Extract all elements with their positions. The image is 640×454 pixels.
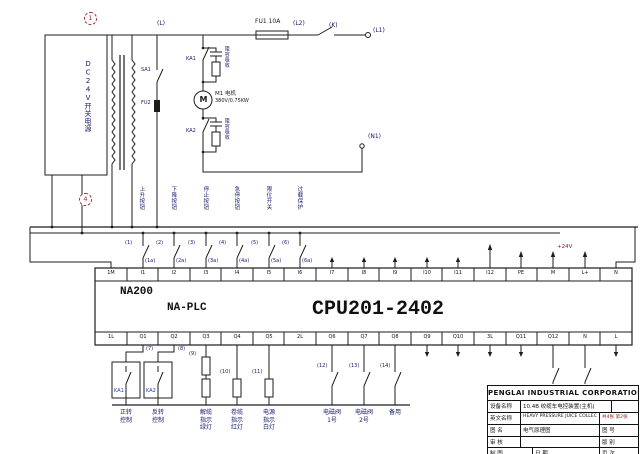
wire-label: (1) bbox=[125, 241, 132, 247]
input-device-label: 上升按钮 bbox=[138, 186, 144, 210]
terminal-label: I3 bbox=[191, 271, 221, 276]
device-name-label: 设备名称 bbox=[488, 401, 520, 412]
fuse2-label: FU2 bbox=[141, 101, 151, 107]
wire-label: (6a) bbox=[302, 259, 312, 265]
control-branch bbox=[154, 35, 163, 227]
empty-cell bbox=[611, 401, 638, 412]
motor-spec-label: 380V/0.75KW bbox=[215, 99, 249, 105]
terminal-label: L+ bbox=[570, 271, 600, 276]
relay-ka2-contact-label: KA2 bbox=[186, 129, 196, 135]
terminal-label: 1M bbox=[96, 271, 126, 276]
terminal-label: I7 bbox=[317, 271, 347, 276]
wire-label: (10) bbox=[220, 370, 230, 376]
spare-output-stubs bbox=[425, 345, 618, 384]
motor-m-letter: M bbox=[200, 95, 208, 104]
terminal-label: 1L bbox=[96, 335, 126, 340]
page-label: 页 次 bbox=[599, 448, 638, 454]
output-device-label: 备用 bbox=[377, 409, 413, 417]
terminal-label: Q12 bbox=[538, 335, 568, 340]
input-columns bbox=[142, 232, 306, 268]
english-name-value: HEAVY PRESSURE JUICE COLLEC bbox=[520, 413, 599, 424]
terminal-label: I2 bbox=[159, 271, 189, 276]
device-name-value: 10.4B 绞缆车电控装置(主机) bbox=[520, 401, 611, 412]
wire-label: (12) bbox=[317, 364, 327, 370]
terminal-label: PE bbox=[506, 271, 536, 276]
schematic-page: 1 4 DC24V开关电源 (L) FU1 10A (L2) (K) (L1) … bbox=[0, 0, 640, 454]
title-block: PENGLAI INDUSTRIAL CORPORATION LIMITED 设… bbox=[487, 385, 639, 454]
terminal-label: I12 bbox=[475, 271, 505, 276]
terminal-label: Q9 bbox=[412, 335, 442, 340]
top-bus bbox=[45, 27, 371, 39]
wire-label: (2a) bbox=[176, 259, 186, 265]
draft-label: 制 图 bbox=[488, 448, 532, 454]
terminal-label: I4 bbox=[222, 271, 252, 276]
terminal-label: I9 bbox=[380, 271, 410, 276]
wire-label: (13) bbox=[349, 364, 359, 370]
terminal-label: I10 bbox=[412, 271, 442, 276]
fuse1-label: FU1 10A bbox=[255, 19, 280, 26]
plc-brand: NA200 bbox=[120, 287, 153, 298]
terminal-label: I5 bbox=[254, 271, 284, 276]
terminal-L1 bbox=[366, 33, 371, 38]
wire-label: (5a) bbox=[271, 259, 281, 265]
rc-snubber-label-2: 阻容吸收 bbox=[223, 118, 229, 140]
wire-label: (7) bbox=[146, 347, 153, 353]
terminal-label: Q8 bbox=[380, 335, 410, 340]
power-supply-label: DC24V开关电源 bbox=[84, 60, 92, 133]
terminal-label: I6 bbox=[285, 271, 315, 276]
terminal-label: M bbox=[538, 271, 568, 276]
output-device-label: 正转 控制 bbox=[108, 409, 144, 424]
terminal-label: Q5 bbox=[254, 335, 284, 340]
terminal-label: I8 bbox=[349, 271, 379, 276]
drawing-name-label: 图 名 bbox=[488, 425, 520, 436]
wire-label: (14) bbox=[380, 364, 390, 370]
terminal-label: Q7 bbox=[349, 335, 379, 340]
wire-label: (6) bbox=[282, 241, 289, 247]
motor-name-label: M1 电机 bbox=[215, 91, 236, 97]
wire-label: (4a) bbox=[239, 259, 249, 265]
terminal-label: I1 bbox=[128, 271, 158, 276]
wire-label-L1: (L1) bbox=[373, 28, 385, 35]
input-device-label: 下降按钮 bbox=[170, 186, 176, 210]
wire-label: (11) bbox=[252, 370, 262, 376]
plc-series: NA-PLC bbox=[167, 303, 207, 314]
check-value bbox=[520, 437, 599, 447]
date-label: 日 期 bbox=[532, 448, 599, 454]
terminal-label: Q2 bbox=[159, 335, 189, 340]
wire-label-L2: (L2) bbox=[293, 21, 305, 28]
terminal-label: N bbox=[570, 335, 600, 340]
terminal-label: I11 bbox=[443, 271, 473, 276]
wire-label-K: (K) bbox=[329, 23, 338, 30]
input-device-label: 停止按钮 bbox=[202, 186, 208, 210]
terminal-label: 3L bbox=[475, 335, 505, 340]
wire-label: (3) bbox=[188, 241, 195, 247]
output-relay-label: KA1 bbox=[114, 389, 124, 395]
wire-label-N1: (N1) bbox=[368, 134, 381, 141]
callout-circle-4: 4 bbox=[79, 193, 92, 206]
plc-cpu-model: CPU201-2402 bbox=[312, 300, 444, 320]
plus24v-label: +24V bbox=[557, 244, 572, 250]
output-device-label: 反转 控制 bbox=[140, 409, 176, 424]
terminal-label: 2L bbox=[285, 335, 315, 340]
output-relay-label: KA2 bbox=[146, 389, 156, 395]
relay-ka1-contact-label: KA1 bbox=[186, 57, 196, 63]
input-device-label: 过载保护 bbox=[296, 186, 302, 210]
input-device-label: 急停按钮 bbox=[233, 186, 239, 210]
wire-label: (4) bbox=[219, 241, 226, 247]
wire-label: (8) bbox=[178, 347, 185, 353]
drawing-name-value: 电气原理图 bbox=[520, 425, 599, 436]
wire-label: (2) bbox=[156, 241, 163, 247]
terminal-label: Q4 bbox=[222, 335, 252, 340]
output-device-label: 卷缆 指示 红灯 bbox=[219, 409, 255, 432]
terminal-label: N bbox=[601, 271, 631, 276]
wire-label: (3a) bbox=[208, 259, 218, 265]
drawing-number-label: 图 号 bbox=[599, 425, 638, 436]
wire-label: (1a) bbox=[145, 259, 155, 265]
version-label: 版 别 bbox=[599, 437, 638, 447]
output-device-label: 电磁阀 1号 bbox=[314, 409, 350, 424]
output-device-label: 电源 指示 白灯 bbox=[251, 409, 287, 432]
check-label: 审 核 bbox=[488, 437, 520, 447]
english-name-label: 英文名称 bbox=[488, 413, 520, 424]
switch-sa-label: SA1 bbox=[141, 68, 151, 74]
spare-input-stubs bbox=[330, 244, 587, 268]
terminal-label: Q10 bbox=[443, 335, 473, 340]
terminal-label: Q6 bbox=[317, 335, 347, 340]
wire-label: (9) bbox=[189, 352, 196, 358]
sheet-info: 共4张 第2张 bbox=[599, 413, 638, 424]
terminal-label: Q1 bbox=[128, 335, 158, 340]
rc-snubber-label-1: 阻容吸收 bbox=[223, 46, 229, 68]
input-device-label: 限位开关 bbox=[265, 186, 271, 210]
fuse2-symbol bbox=[154, 100, 160, 112]
terminal-label: Q11 bbox=[506, 335, 536, 340]
callout-circle-1: 1 bbox=[84, 12, 97, 25]
terminal-label: Q3 bbox=[191, 335, 221, 340]
wire-label-L: (L) bbox=[157, 21, 165, 28]
terminal-N1 bbox=[360, 144, 364, 148]
wire-label: (5) bbox=[251, 241, 258, 247]
terminal-label: L bbox=[601, 335, 631, 340]
company-name: PENGLAI INDUSTRIAL CORPORATION LIMITED bbox=[488, 386, 638, 400]
